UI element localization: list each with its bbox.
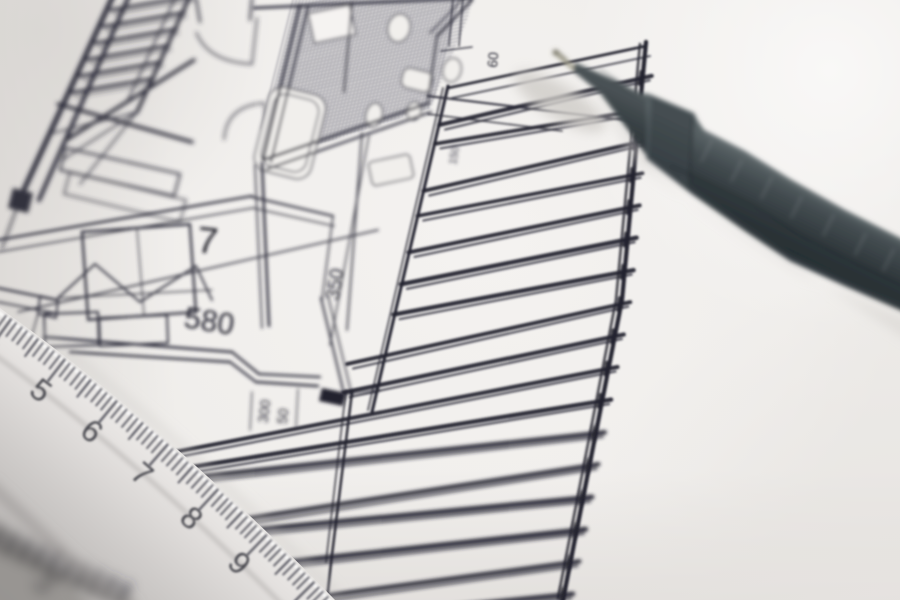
svg-text:50: 50 xyxy=(274,407,292,425)
svg-text:7: 7 xyxy=(195,219,220,262)
svg-text:60: 60 xyxy=(484,51,501,68)
svg-text:300: 300 xyxy=(255,399,274,424)
